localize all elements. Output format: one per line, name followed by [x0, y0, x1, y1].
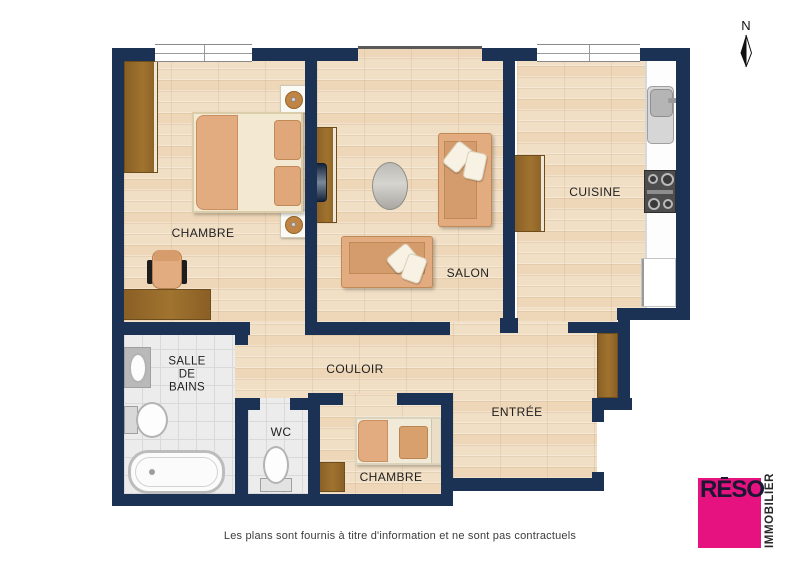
wall: [592, 472, 604, 491]
bed-pillow: [274, 166, 301, 206]
wall: [308, 398, 320, 494]
single-bed: [355, 417, 441, 465]
wall: [235, 322, 248, 345]
disclaimer-text: Les plans sont fournis à titre d'informa…: [0, 530, 800, 542]
wall: [235, 398, 248, 494]
nightstand: [280, 85, 306, 113]
room-label-bedroom-1: CHAMBRE: [172, 226, 235, 240]
room-label-living-room: SALON: [447, 266, 490, 280]
window: [537, 44, 640, 62]
kitchen-sink: [647, 86, 674, 144]
toilet: [258, 446, 294, 492]
sofa: [341, 236, 433, 288]
floor-plan: CHAMBRE SALON CUISINE SALLE DE BAINS COU…: [0, 0, 800, 565]
compass-north-label: N: [737, 18, 755, 33]
window: [155, 44, 252, 62]
room-label-kitchen: CUISINE: [569, 185, 620, 199]
bay-window: [358, 46, 482, 49]
wall: [112, 494, 453, 506]
room-label-wc: WC: [271, 425, 292, 439]
kitchen-door: [641, 258, 676, 307]
room-label-bedroom-2: CHAMBRE: [360, 470, 423, 484]
wall: [500, 318, 518, 333]
lamp-icon: [285, 91, 303, 109]
wall: [305, 322, 450, 335]
bed-blanket: [196, 115, 238, 210]
double-bed: [192, 112, 303, 213]
desk: [121, 289, 211, 320]
compass-needle-icon: [737, 34, 755, 68]
toilet: [124, 402, 168, 438]
room-label-hallway: COULOIR: [326, 362, 383, 376]
entrance-closet: [597, 333, 618, 398]
bedroom-cabinet: [318, 462, 345, 492]
wall: [568, 322, 630, 333]
wall: [235, 398, 260, 410]
wall: [308, 393, 343, 405]
wall: [592, 398, 632, 410]
bathtub: [128, 450, 225, 494]
wall: [503, 48, 515, 333]
wall: [592, 410, 604, 422]
sofa: [438, 133, 492, 227]
bed-pillow: [274, 120, 301, 160]
bed-pillow: [399, 426, 428, 459]
desk-chair: [152, 250, 182, 289]
wall: [676, 48, 690, 320]
floor-kitchen-passage: [517, 308, 617, 322]
wall: [112, 48, 124, 506]
wall: [112, 322, 250, 335]
nightstand: [280, 210, 306, 238]
wall: [441, 393, 453, 494]
washbasin: [124, 347, 151, 388]
lamp-icon: [285, 216, 303, 234]
kitchen-cabinet: [513, 155, 545, 232]
wall: [305, 48, 317, 333]
room-label-bathroom: SALLE DE BAINS: [168, 356, 205, 395]
wardrobe: [124, 61, 158, 173]
logo-brand-text: RĒSO: [700, 476, 761, 504]
stove: [644, 170, 676, 213]
coffee-table: [372, 162, 408, 210]
room-label-entrance: ENTRÉE: [491, 405, 542, 419]
wall: [441, 478, 604, 491]
